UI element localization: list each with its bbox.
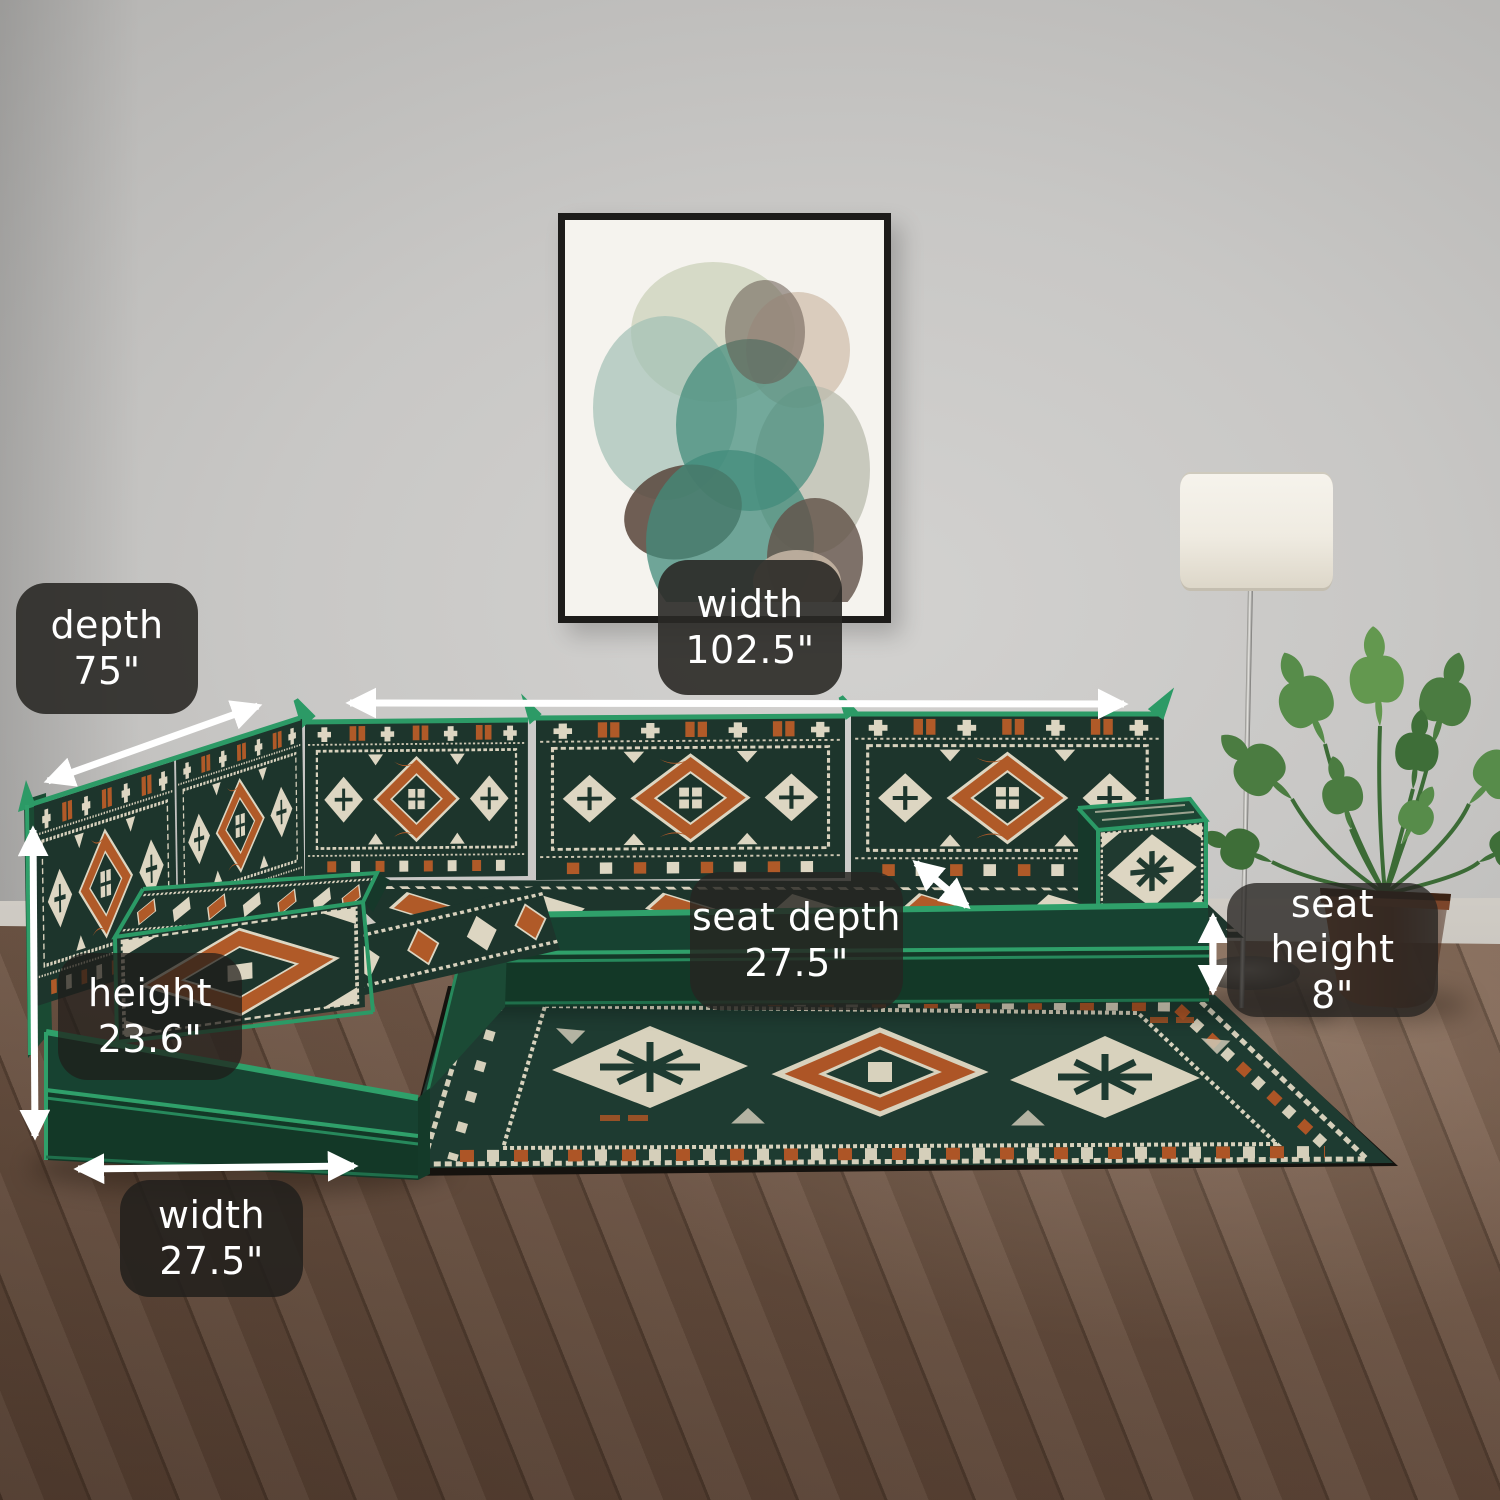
dimension-label-width-bottom: width 27.5" <box>120 1180 303 1297</box>
dimension-name: width <box>696 582 803 628</box>
width-top-arrow <box>350 703 1124 704</box>
dimension-value: 75" <box>73 649 140 695</box>
height-arrow <box>33 830 35 1136</box>
dimension-value: 8" <box>1311 973 1354 1019</box>
dimension-value: 27.5" <box>744 941 849 987</box>
dimension-value: 102.5" <box>685 628 814 674</box>
dimension-name: width <box>158 1193 265 1239</box>
product-dimensions-photo: depth 75" width 102.5" seat depth 27.5" … <box>0 0 1500 1500</box>
dimension-label-seat-height: seat height 8" <box>1227 883 1438 1017</box>
seat-depth-arrow <box>916 863 967 906</box>
dimension-label-seat-depth: seat depth 27.5" <box>690 872 903 1010</box>
dimension-name: seat depth <box>692 895 901 941</box>
dimension-value: 27.5" <box>159 1239 264 1285</box>
dimension-name: seat height <box>1227 882 1438 973</box>
dimension-name: height <box>88 971 212 1017</box>
depth-arrow <box>48 706 258 781</box>
dimension-label-height: height 23.6" <box>58 953 242 1080</box>
dimension-label-width-top: width 102.5" <box>658 560 842 695</box>
width-bottom-arrow <box>78 1166 354 1169</box>
dimension-label-depth: depth 75" <box>16 583 198 714</box>
dimension-value: 23.6" <box>98 1017 203 1063</box>
dimension-name: depth <box>50 603 163 649</box>
